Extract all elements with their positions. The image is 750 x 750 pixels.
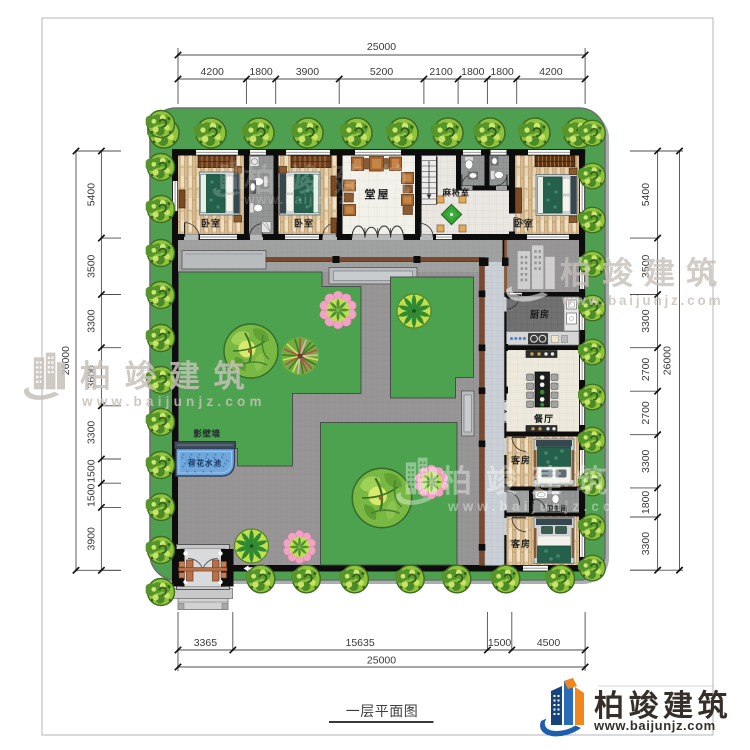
svg-text:5400: 5400 [640, 183, 652, 207]
svg-text:5200: 5200 [370, 66, 394, 78]
svg-text:www.baijunjz.com: www.baijunjz.com [81, 394, 266, 409]
svg-text:2100: 2100 [429, 66, 453, 78]
svg-text:3365: 3365 [194, 637, 218, 649]
svg-text:15635: 15635 [345, 637, 374, 649]
svg-text:3300: 3300 [640, 309, 652, 333]
svg-text:1500: 1500 [86, 483, 98, 507]
svg-text:1800: 1800 [640, 491, 652, 515]
svg-text:4500: 4500 [537, 637, 561, 649]
svg-text:一层平面图: 一层平面图 [346, 703, 419, 719]
svg-text:4200: 4200 [201, 66, 225, 78]
svg-text:5400: 5400 [86, 183, 98, 207]
svg-text:1800: 1800 [490, 66, 514, 78]
svg-text:柏竣建筑: 柏竣建筑 [560, 256, 728, 291]
svg-text:www.baijunjz.com: www.baijunjz.com [243, 192, 385, 207]
svg-text:www.baijunjz.com: www.baijunjz.com [561, 293, 723, 308]
svg-text:荷花水池: 荷花水池 [187, 458, 222, 468]
svg-text:3500: 3500 [86, 254, 98, 278]
svg-text:客房: 客房 [510, 538, 531, 549]
svg-text:3300: 3300 [640, 449, 652, 473]
svg-text:3900: 3900 [296, 66, 320, 78]
svg-text:4200: 4200 [539, 66, 563, 78]
svg-text:1500: 1500 [86, 459, 98, 483]
svg-text:3300: 3300 [640, 532, 652, 556]
svg-text:柏竣建筑: 柏竣建筑 [80, 359, 258, 394]
svg-text:卧室: 卧室 [514, 218, 534, 229]
svg-text:卧室: 卧室 [294, 218, 314, 229]
svg-text:3900: 3900 [86, 527, 98, 551]
svg-text:影壁墙: 影壁墙 [193, 429, 220, 439]
svg-text:麻将室: 麻将室 [441, 188, 469, 198]
svg-text:25000: 25000 [367, 655, 396, 667]
svg-text:25000: 25000 [367, 41, 396, 53]
svg-text:卧室: 卧室 [201, 218, 221, 229]
svg-text:26000: 26000 [662, 346, 674, 375]
svg-text:餐厅: 餐厅 [533, 413, 554, 424]
svg-text:1800: 1800 [461, 66, 485, 78]
svg-text:1500: 1500 [488, 637, 512, 649]
svg-text:2700: 2700 [640, 358, 652, 382]
svg-text:1800: 1800 [249, 66, 273, 78]
svg-text:www.baijunjz.com: www.baijunjz.com [447, 499, 632, 514]
svg-text:2700: 2700 [640, 401, 652, 425]
svg-text:3300: 3300 [86, 309, 98, 333]
svg-text:www.baijunjz.com: www.baijunjz.com [593, 718, 716, 733]
svg-text:厨房: 厨房 [530, 309, 550, 320]
svg-text:3300: 3300 [86, 421, 98, 445]
svg-text:柏竣建筑: 柏竣建筑 [441, 464, 621, 499]
